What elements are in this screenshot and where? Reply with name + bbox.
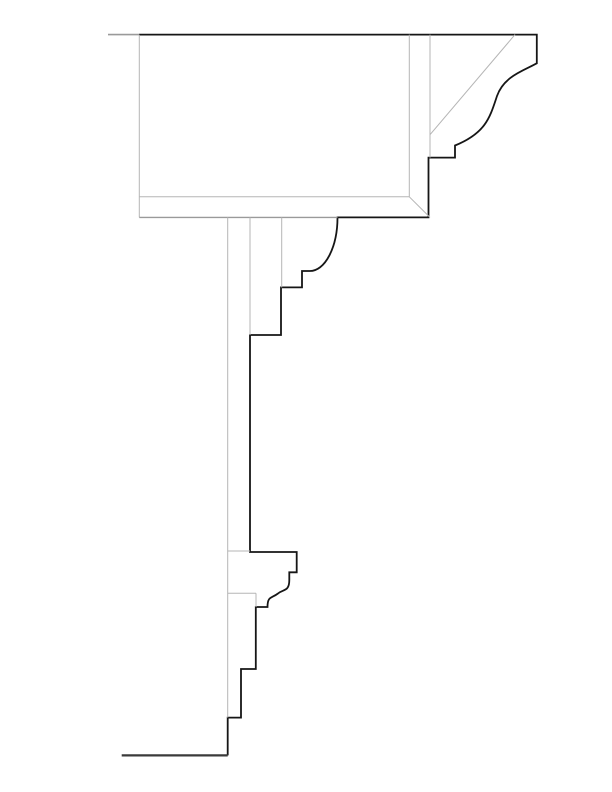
cornice-section-drawing [0, 0, 612, 792]
drawing-figure [0, 0, 612, 792]
page [0, 0, 612, 792]
cornice-profile-outline [139, 35, 537, 756]
beam-corner-miter-line [409, 197, 430, 218]
